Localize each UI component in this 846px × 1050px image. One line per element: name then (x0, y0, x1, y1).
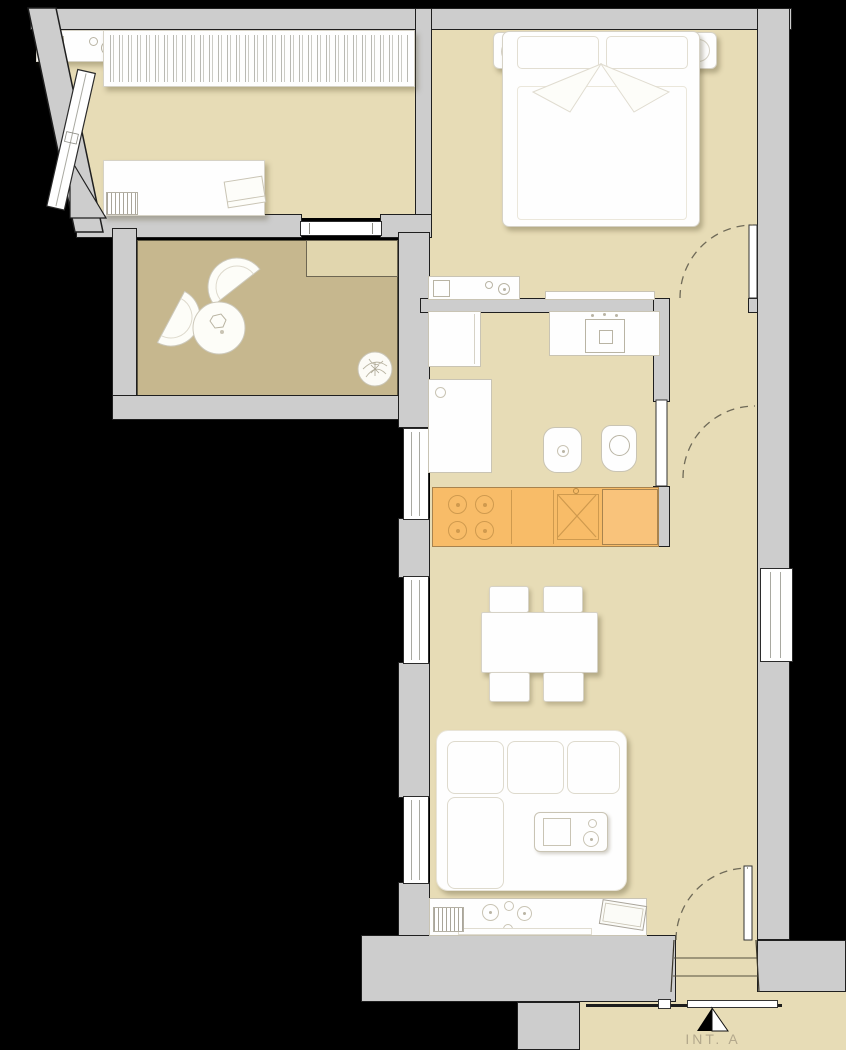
bedroom-dresser (428, 276, 520, 300)
dresser-knob-small (485, 281, 493, 289)
bidet (543, 427, 582, 473)
double-bed (502, 31, 700, 227)
shower-drain (435, 387, 446, 398)
window-dining (403, 576, 429, 664)
wall-living-left-c (398, 662, 430, 798)
laundry-unit (428, 311, 481, 367)
sideboard-decor-2 (504, 901, 514, 911)
dining-chair-4 (543, 672, 584, 702)
wall-top (30, 8, 792, 30)
bidet-faucet (557, 445, 569, 457)
french-window-sill (300, 221, 382, 236)
bottom-threshold-cap-left (658, 999, 671, 1009)
kitchen-counter (432, 487, 659, 547)
kitchen-fridge-section (602, 489, 658, 545)
wardrobe (103, 30, 415, 87)
hob-burner-2 (475, 495, 494, 514)
wall-living-left-a (398, 232, 430, 428)
window-kitchen (403, 428, 429, 520)
wall-terrace-left (112, 228, 137, 420)
tray-cup-large (583, 831, 599, 847)
dining-chair-2 (543, 586, 583, 613)
unit-label: INT. A (668, 1031, 758, 1047)
living-radiator (433, 907, 464, 932)
toilet-bowl (609, 435, 630, 456)
sofa-cushion-2 (507, 741, 564, 794)
toilet (601, 425, 637, 472)
tray-table (534, 812, 608, 852)
faucet-dot-1 (591, 314, 594, 317)
dining-table (481, 612, 598, 673)
counter-divider-2 (553, 490, 554, 544)
kitchenette-appliance (43, 36, 64, 57)
tray-cup-small (588, 819, 597, 828)
sofa-cushion-3 (567, 741, 620, 794)
wall-living-left-d (398, 882, 430, 937)
hob-burner-3 (448, 521, 467, 540)
wardrobe-hangers (110, 35, 408, 82)
dresser-appliance (433, 280, 450, 297)
wall-bottom-right (757, 940, 846, 992)
sideboard-shelf-line (458, 928, 592, 935)
counter-divider-1 (511, 490, 512, 544)
kitchen-sink (557, 494, 599, 540)
wall-bottom-pier (517, 1002, 580, 1050)
dresser-knob-large (498, 283, 510, 295)
wall-terrace-bottom (112, 395, 430, 420)
faucet-dot-2 (603, 313, 606, 316)
sill-tick-left (309, 223, 310, 234)
pillow-right (606, 36, 688, 69)
sideboard-decor-1 (482, 904, 499, 921)
floor-plan-canvas: INT. A (0, 0, 846, 1050)
corner-sofa (436, 730, 627, 891)
sofa-cushion-1 (447, 741, 504, 794)
bottom-threshold-cap-right (687, 1000, 778, 1008)
sofa-chaise-cushion (447, 797, 504, 889)
shower-tray (428, 379, 492, 473)
wall-studio-bottom-left (76, 214, 302, 238)
kitchenette-knob-small (89, 37, 98, 46)
faucet-dot-3 (615, 314, 618, 317)
laundry-door-line (474, 314, 475, 364)
sideboard-decor-3 (517, 906, 532, 921)
washbasin-bowl (599, 330, 613, 344)
hob-burner-4 (475, 521, 494, 540)
entrance-steps-floor (672, 940, 757, 992)
dining-chair-3 (489, 672, 530, 702)
dining-chair-1 (489, 586, 529, 613)
wall-studio-bedroom-divider (415, 8, 432, 234)
tray-square (543, 818, 571, 846)
window-living (403, 796, 429, 884)
bedroom-wall-shelf (545, 291, 655, 300)
terrace-landing (306, 240, 398, 277)
bed-duvet (517, 86, 687, 220)
wall-bottom-main (361, 935, 676, 1002)
sill-tick-right (372, 223, 373, 234)
vanity-counter (549, 311, 660, 356)
washbasin (585, 319, 625, 353)
window-hall-right (760, 568, 793, 662)
hob-burner-1 (448, 495, 467, 514)
wall-right (757, 8, 790, 940)
wall-living-left-b (398, 518, 430, 578)
studio-radiator (106, 192, 138, 215)
pillow-left (517, 36, 599, 69)
